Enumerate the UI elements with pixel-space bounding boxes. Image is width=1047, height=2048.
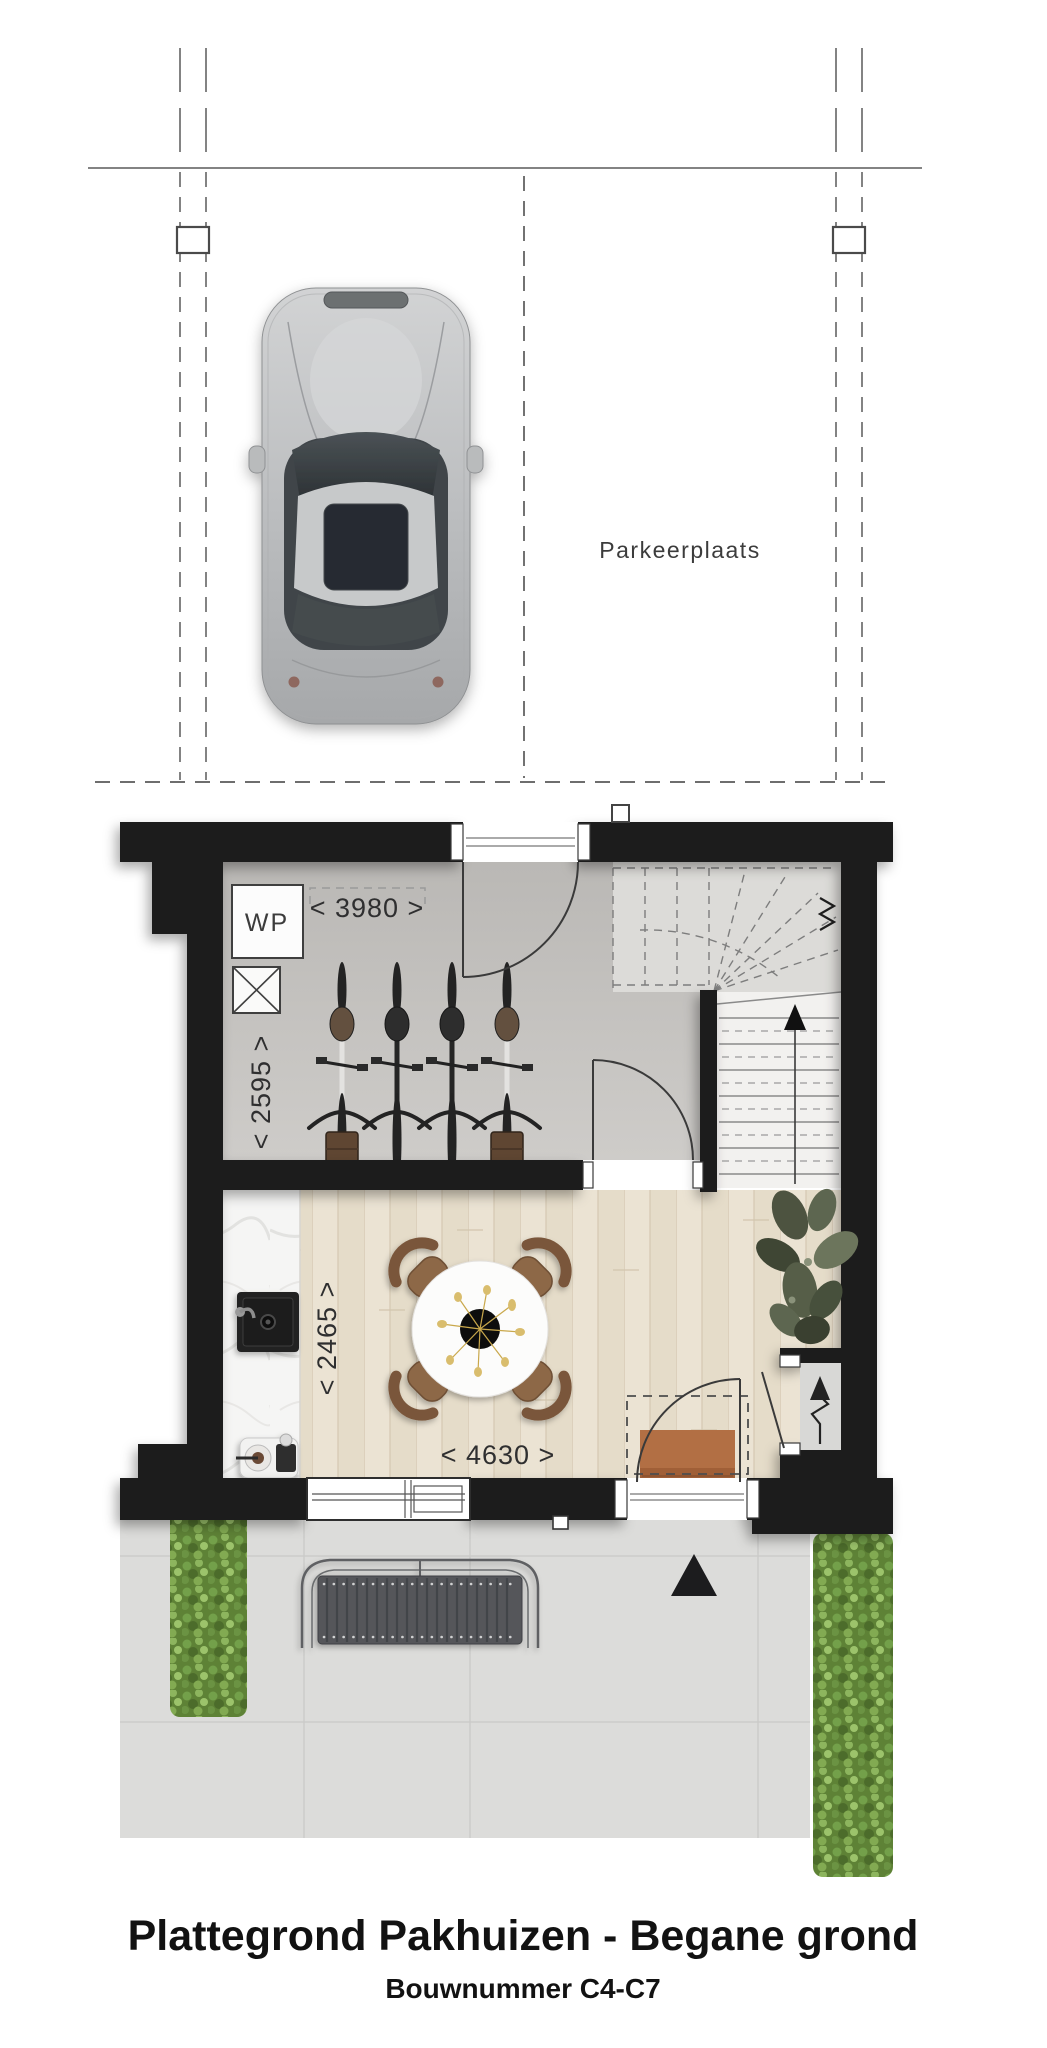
dim-living-width: < 4630 > xyxy=(441,1440,556,1470)
parking-area: Parkeerplaats xyxy=(88,48,922,782)
terrace xyxy=(120,1503,893,1877)
coffee-machine xyxy=(236,1434,298,1478)
dim-living-depth: < 2465 > xyxy=(312,1281,342,1396)
wp-label: WP xyxy=(245,909,289,937)
plot-boundary-lines xyxy=(88,48,922,782)
window-frame xyxy=(307,1478,470,1520)
drain-point xyxy=(553,1516,568,1529)
winder-area xyxy=(613,862,841,992)
page-subtitle: Bouwnummer C4-C7 xyxy=(385,1973,660,2004)
dim-storage-depth: < 2595 > xyxy=(246,1035,276,1150)
car-mirror-right xyxy=(467,446,483,473)
parking-label: Parkeerplaats xyxy=(599,537,760,563)
dim-storage-width: < 3980 > xyxy=(310,893,425,923)
kitchen-sink xyxy=(235,1292,299,1352)
page-title: Plattegrond Pakhuizen - Begane grond xyxy=(128,1912,919,1960)
parking-post-right xyxy=(833,227,865,253)
shaft-symbol xyxy=(233,967,280,1013)
doorbell-point xyxy=(612,805,629,822)
car-mirror-left xyxy=(249,446,265,473)
floorplan-page: Parkeerplaats xyxy=(0,0,1047,2048)
parking-post-left xyxy=(177,227,209,253)
car-top-view xyxy=(249,288,483,724)
hedge-left xyxy=(170,1503,247,1717)
hedge-right xyxy=(813,1533,893,1877)
